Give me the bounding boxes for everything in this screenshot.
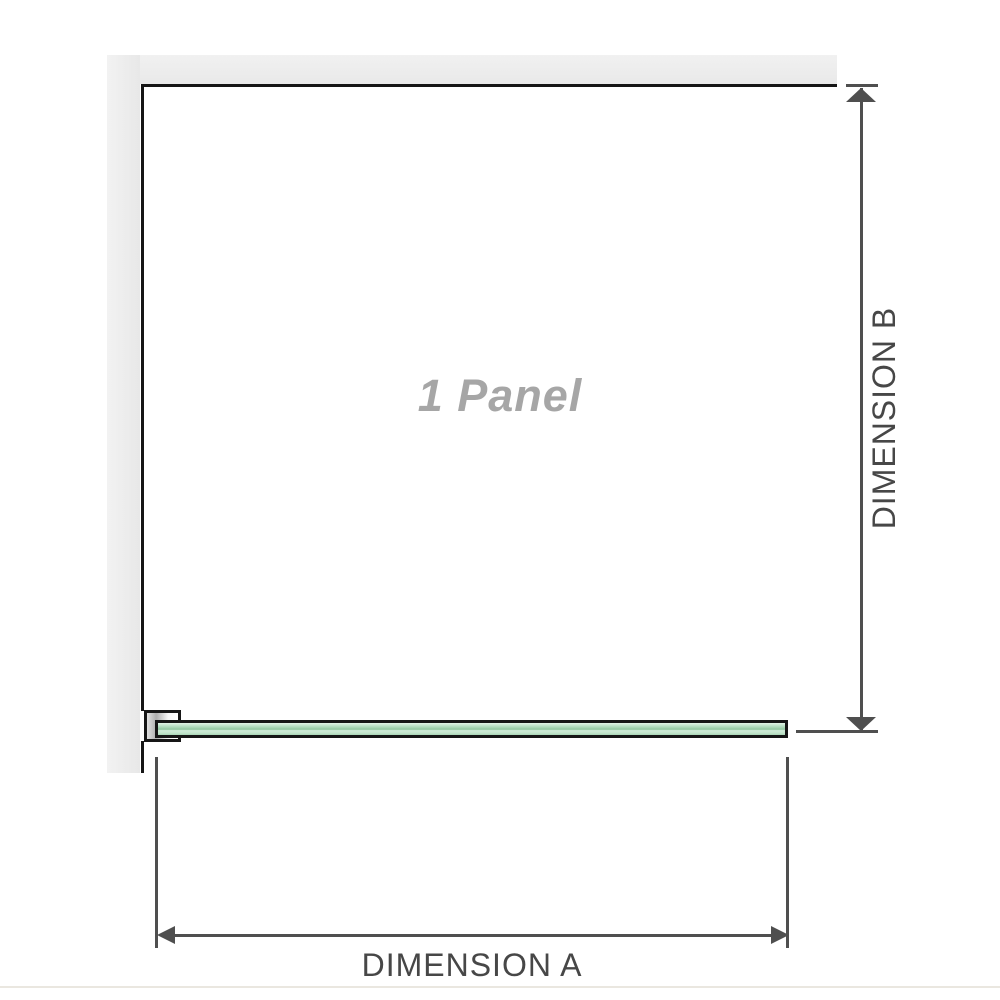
dimension-b-label: DIMENSION B xyxy=(864,268,904,568)
arrow-down-icon xyxy=(846,717,876,731)
panel-outline-left xyxy=(141,84,144,711)
wall-left xyxy=(107,55,140,773)
dimension-b-tick-top xyxy=(846,84,878,87)
wall-top xyxy=(107,55,837,84)
glass-panel xyxy=(155,720,788,738)
dimension-a-label: DIMENSION A xyxy=(272,947,672,984)
arrow-left-icon xyxy=(157,926,175,944)
dimension-a-line xyxy=(170,934,776,937)
shower-panel-dimension-diagram: 1 Panel DIMENSION B DIMENSION A xyxy=(0,0,1000,1000)
panel-outline-top xyxy=(141,84,837,87)
dimension-a-extension-left xyxy=(155,757,158,948)
footer-divider xyxy=(0,986,1000,988)
arrow-right-icon xyxy=(771,926,789,944)
wall-edge-lower xyxy=(141,741,144,773)
dimension-a-extension-right xyxy=(786,757,789,948)
panel-count-label: 1 Panel xyxy=(300,370,700,422)
dimension-b-line xyxy=(860,88,863,732)
arrow-up-icon xyxy=(846,88,876,102)
